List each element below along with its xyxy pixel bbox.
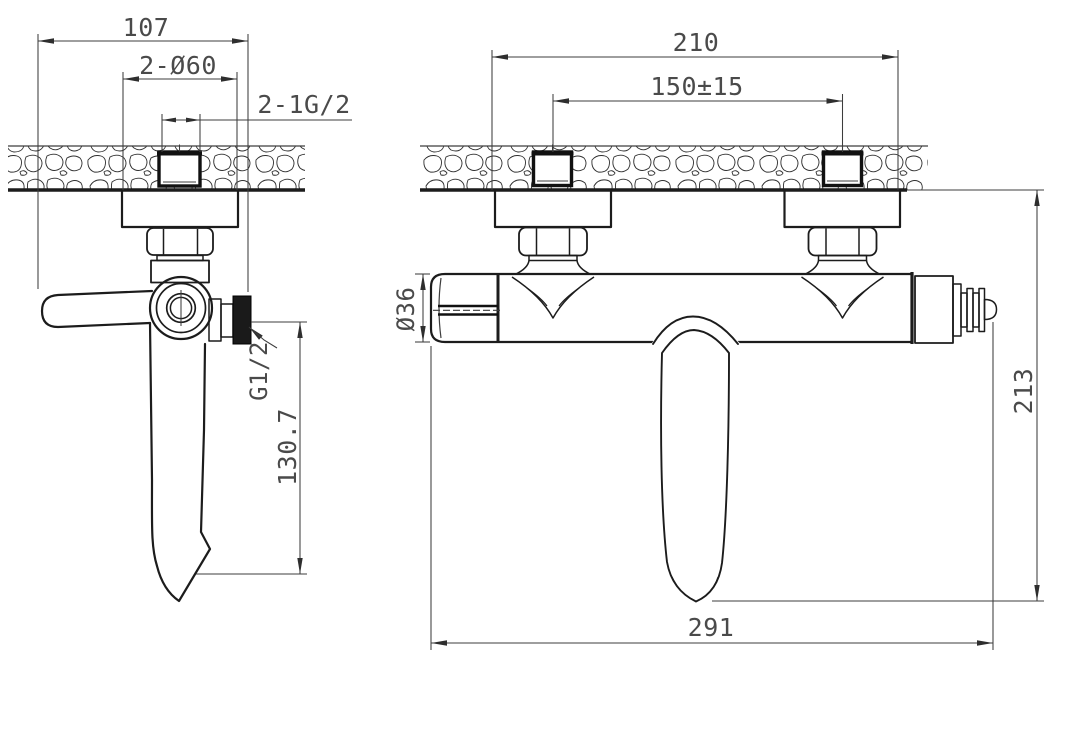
hex-nut xyxy=(147,228,213,255)
drawing-sheet: 107 2-Ø60 2-1G/2 xyxy=(0,0,1082,749)
escutcheon-plate xyxy=(785,190,901,227)
hex-nut xyxy=(519,228,587,256)
front-inlet-left xyxy=(495,190,611,274)
arrow-right xyxy=(221,76,237,81)
arrow-down xyxy=(1034,585,1039,601)
arrow-left xyxy=(162,118,176,123)
nipple-dome xyxy=(985,300,997,320)
drawing-canvas: 107 2-Ø60 2-1G/2 xyxy=(0,0,1082,749)
dim-text-2-o60: 2-Ø60 xyxy=(139,51,217,80)
front-spout xyxy=(650,317,742,602)
spout-inner-arc xyxy=(672,577,718,600)
dim-body-diameter: Ø36 xyxy=(392,274,430,342)
arrow-up xyxy=(297,322,302,338)
dim-text-291: 291 xyxy=(688,613,735,642)
dim-text-130-7: 130.7 xyxy=(273,408,302,486)
dim-text-g12: G1/2 xyxy=(245,341,273,401)
arrow-right xyxy=(977,640,993,645)
dim-text-210: 210 xyxy=(673,28,720,57)
arrow-down xyxy=(420,326,425,342)
nipple-ring xyxy=(973,293,979,327)
side-wall-section xyxy=(8,145,305,191)
trim-skirt xyxy=(516,261,590,275)
arrow-left xyxy=(431,640,447,645)
arrow-up xyxy=(1034,190,1039,206)
dim-text-2-1g2: 2-1G/2 xyxy=(257,90,350,119)
arrow-right xyxy=(186,118,200,123)
side-faucet xyxy=(42,190,251,601)
escutcheon-plate xyxy=(122,190,238,227)
spout-outline xyxy=(661,330,729,602)
dim-text-150-15: 150±15 xyxy=(650,72,743,101)
front-diverter-knob xyxy=(915,276,997,343)
arrow-right xyxy=(882,54,898,59)
arrow-up xyxy=(420,274,425,290)
arrow-left xyxy=(492,54,508,59)
outlet-step-2 xyxy=(221,304,233,337)
dim-text-107: 107 xyxy=(123,13,170,42)
arrow-right xyxy=(232,38,248,43)
arrow-down xyxy=(297,558,302,574)
outlet-knurled-cap xyxy=(233,296,251,344)
nipple-ring xyxy=(979,289,985,332)
arrow-left xyxy=(38,38,54,43)
spout-side xyxy=(150,323,210,601)
embedded-pipe-box xyxy=(159,152,200,186)
front-view: 210 150±15 Ø36 xyxy=(392,28,1044,650)
side-view: 107 2-Ø60 2-1G/2 xyxy=(8,13,352,601)
nipple-ring xyxy=(967,289,973,332)
nut-washer xyxy=(529,256,577,261)
nut-washer xyxy=(819,256,867,261)
valve-neck xyxy=(151,261,209,283)
knob-collar xyxy=(953,284,961,336)
lever-handle xyxy=(42,291,152,327)
front-inlet-right xyxy=(785,190,901,274)
dim-overall-height: 213 xyxy=(712,190,1044,601)
arrow-left xyxy=(553,98,569,103)
dim-inlet-thread: 2-1G/2 xyxy=(162,90,352,152)
dim-text-o36: Ø36 xyxy=(392,287,420,332)
knurled-knob xyxy=(915,276,953,343)
dim-text-213: 213 xyxy=(1009,368,1038,415)
arrow-right xyxy=(827,98,843,103)
trim-skirt xyxy=(806,261,880,275)
hex-nut xyxy=(809,228,877,256)
arrow-left xyxy=(123,76,139,81)
dim-inlet-spacing: 150±15 xyxy=(553,72,843,152)
front-wall-section xyxy=(420,145,928,191)
nipple-ring xyxy=(961,293,967,327)
escutcheon-plate xyxy=(495,190,611,227)
wall-hatch xyxy=(8,146,305,190)
